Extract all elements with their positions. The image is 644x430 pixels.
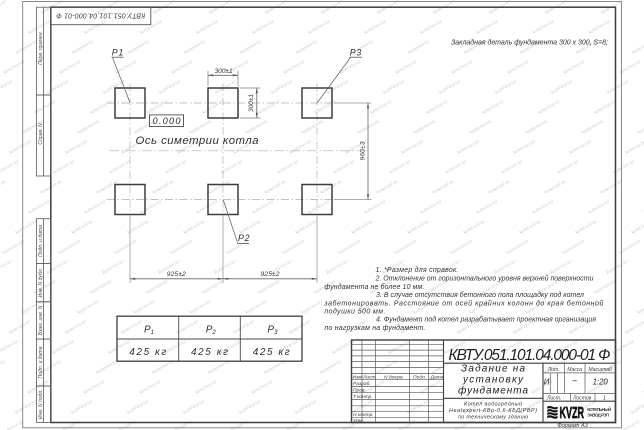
svg-text:Взам. инв. N: Взам. инв. N: [38, 305, 44, 335]
svg-text:Р1: Р1: [112, 47, 124, 57]
svg-text:KVZR: KVZR: [560, 405, 585, 422]
svg-text:Дата: Дата: [430, 375, 444, 381]
svg-text:1: 1: [603, 396, 606, 402]
svg-text:ЗАВОД РЭП: ЗАВОД РЭП: [587, 412, 609, 417]
svg-text:Листов: Листов: [572, 396, 592, 402]
svg-text:фундамента не более 10 мм.: фундамента не более 10 мм.: [324, 283, 424, 291]
svg-text:по техническому зданию: по техническому зданию: [458, 414, 528, 420]
svg-text:Масштаб: Масштаб: [589, 367, 613, 373]
svg-text:по нагрузкам на фундамент.: по нагрузкам на фундамент.: [324, 324, 425, 332]
svg-text:Котел водогрейный: Котел водогрейный: [464, 400, 522, 407]
svg-text:Инв. N подл.: Инв. N подл.: [38, 389, 44, 419]
svg-text:Т.контр.: Т.контр.: [353, 394, 373, 400]
svg-text:Подп. и дата: Подп. и дата: [38, 225, 44, 257]
svg-text:300±1: 300±1: [215, 68, 233, 75]
svg-text:Масса: Масса: [567, 367, 582, 373]
svg-text:Подп.: Подп.: [413, 375, 426, 381]
svg-text:425 кг: 425 кг: [253, 347, 290, 358]
svg-text:И: И: [544, 378, 550, 387]
svg-text:КВТУ.051.101.04.000-01 Ф: КВТУ.051.101.04.000-01 Ф: [449, 347, 611, 364]
svg-text:Перв. примен.: Перв. примен.: [38, 31, 44, 65]
svg-text:Лист.: Лист.: [546, 396, 561, 402]
svg-text:4. Фундамент под котел разраба: 4. Фундамент под котел разрабатывает про…: [376, 316, 596, 324]
svg-text:Формат А3: Формат А3: [557, 423, 588, 429]
svg-text:Лит.: Лит.: [547, 367, 560, 373]
svg-text:0.000: 0.000: [153, 116, 182, 126]
svg-text:Разраб.: Разраб.: [353, 381, 371, 387]
svg-text:–: –: [572, 376, 578, 385]
svg-text:425 кг: 425 кг: [191, 347, 228, 358]
svg-text:N докум.: N докум.: [384, 375, 404, 381]
svg-text:Лист: Лист: [362, 375, 376, 381]
svg-text:Р3: Р3: [350, 47, 362, 57]
svg-text:1:20: 1:20: [593, 378, 609, 387]
svg-text:925±2: 925±2: [167, 271, 186, 278]
svg-text:Справ. N: Справ. N: [38, 123, 44, 145]
svg-text:Закладная деталь фундамента 3: Закладная деталь фундамента 300 х 300, S…: [451, 39, 608, 47]
svg-text:960±3: 960±3: [359, 141, 366, 160]
svg-text:1. *Размер для справок.: 1. *Размер для справок.: [376, 266, 459, 274]
svg-text:Н.контр.: Н.контр.: [353, 412, 374, 418]
svg-text:фундамента: фундамента: [458, 385, 528, 397]
svg-text:425 кг: 425 кг: [129, 347, 166, 358]
svg-text:Инв. N дубл.: Инв. N дубл.: [38, 268, 44, 298]
svg-text:300±1: 300±1: [248, 94, 255, 112]
svg-text:Изм.: Изм.: [353, 375, 363, 381]
svg-text:3. В случае отсутствия бетонно: 3. В случае отсутствия бетонного пола пл…: [376, 291, 584, 299]
svg-text:КВТУ.051.101.04.000-01 Ф: КВТУ.051.101.04.000-01 Ф: [56, 12, 145, 19]
svg-text:925±2: 925±2: [261, 271, 280, 278]
svg-text:Подп. и дата: Подп. и дата: [38, 346, 44, 378]
svg-text:установку: установку: [462, 375, 524, 386]
svg-text:Задание на: Задание на: [461, 363, 525, 374]
svg-text:Heatexpert-КВр-0,6-КБД(РВР): Heatexpert-КВр-0,6-КБД(РВР): [449, 408, 537, 414]
svg-text:забетонировать. Расстояние от: забетонировать. Расстояние от осей крайн…: [323, 299, 603, 307]
svg-text:КОТЕЛЬНЫЙ: КОТЕЛЬНЫЙ: [587, 407, 611, 412]
svg-text:2. Отклонение от горизонтально: 2. Отклонение от горизонтального уровня …: [375, 275, 594, 283]
svg-text:Утв.: Утв.: [353, 418, 364, 424]
svg-text:Р2: Р2: [238, 233, 250, 243]
svg-text:Ось симетрии котла: Ось симетрии котла: [136, 135, 259, 147]
svg-text:Пров.: Пров.: [353, 388, 366, 394]
svg-text:подушки 500 мм.: подушки 500 мм.: [324, 308, 385, 316]
